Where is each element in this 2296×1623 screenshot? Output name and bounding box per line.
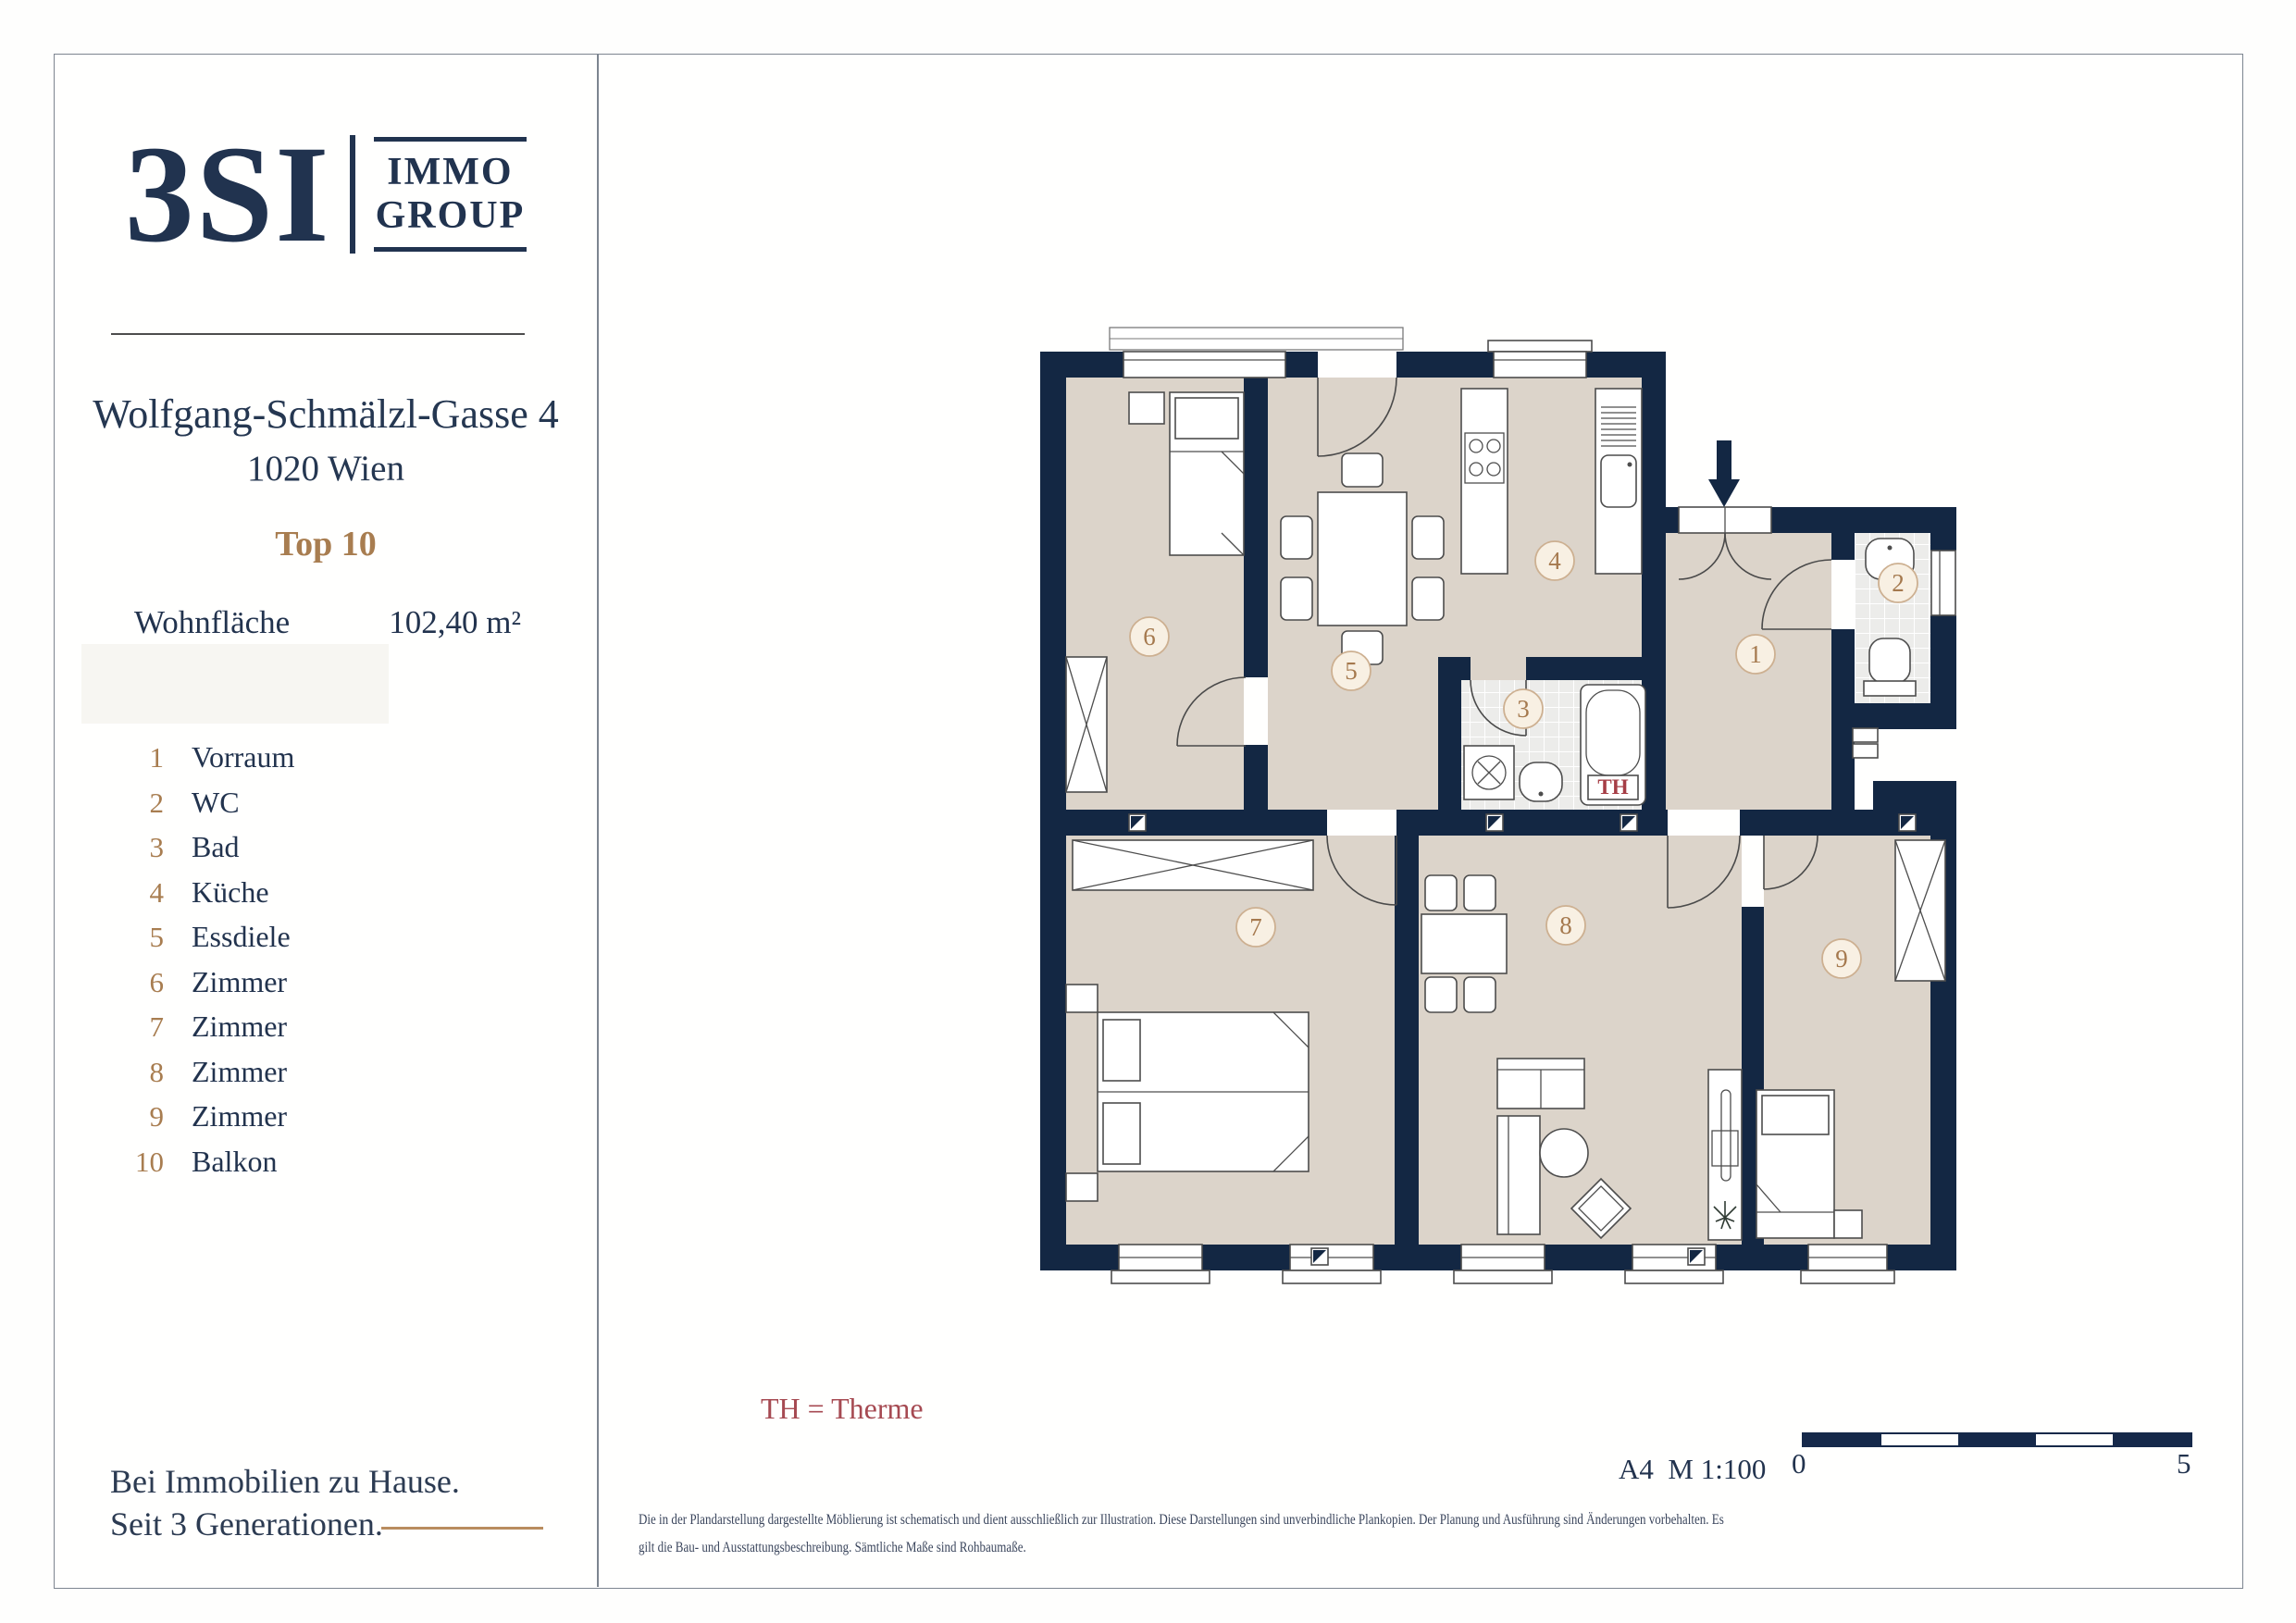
window-room8-left [1454, 1245, 1552, 1283]
legend-item: 7Zimmer [97, 1010, 294, 1055]
svg-text:6: 6 [1143, 623, 1156, 650]
svg-text:1: 1 [1749, 640, 1762, 668]
company-logo: 3SI IMMO GROUP [54, 125, 598, 264]
bath-sink [1520, 762, 1562, 801]
room-number-8: 8 [1546, 906, 1585, 945]
logo-group-text: GROUP [376, 194, 526, 238]
double-bed [1098, 1012, 1309, 1171]
room-number-2: 2 [1879, 564, 1917, 602]
legend-item: 6Zimmer [97, 965, 294, 1010]
room-number-5: 5 [1332, 651, 1371, 690]
washing-machine [1464, 746, 1514, 799]
wardrobe-room6 [1066, 657, 1107, 792]
faded-area-box [81, 644, 389, 724]
chaise [1497, 1116, 1540, 1234]
svg-text:2: 2 [1892, 569, 1905, 597]
balcony [1110, 328, 1403, 350]
tagline-line2: Seit 3 Generationen. [110, 1505, 383, 1543]
room-number-6: 6 [1130, 617, 1169, 656]
entry-arrow-icon [1708, 440, 1740, 507]
room-number-1: 1 [1736, 635, 1775, 674]
window-room8-right [1625, 1245, 1723, 1283]
logo-immo-text: IMMO [387, 151, 513, 194]
living-area-value: 102,40 m² [389, 604, 521, 641]
legend-item: 5Essdiele [97, 920, 294, 965]
logo-separator-line [111, 333, 525, 335]
window-room9 [1801, 1245, 1894, 1283]
unit-title: Top 10 [54, 524, 598, 564]
disclaimer-text: Die in der Plandarstellung dargestellte … [639, 1506, 1724, 1562]
room-number-4: 4 [1535, 541, 1574, 580]
window-room7-left [1111, 1245, 1210, 1283]
wardrobe-room7 [1073, 840, 1313, 890]
scale-start-label: 0 [1792, 1447, 1806, 1481]
round-table [1540, 1129, 1588, 1177]
window-kitchen [1488, 341, 1592, 378]
svg-text:5: 5 [1345, 657, 1358, 685]
living-area-label: Wohnfläche [134, 604, 290, 641]
room-number-7: 7 [1236, 908, 1275, 947]
th-label: TH [1597, 775, 1628, 799]
shelf-plant [1708, 1070, 1742, 1240]
svg-text:8: 8 [1559, 911, 1572, 939]
scale-end-label: 5 [2177, 1447, 2191, 1481]
window-room7-right [1283, 1245, 1381, 1283]
floor-plan: TH 1 2 3 4 5 6 7 8 9 [1040, 319, 1966, 1309]
address-city: 1020 Wien [54, 448, 598, 489]
tagline-accent-line [381, 1527, 543, 1530]
tagline-line1: Bei Immobilien zu Hause. [110, 1462, 460, 1501]
room-number-3: 3 [1504, 689, 1543, 728]
logo-vertical-rule [350, 135, 355, 254]
meter-boxes [1853, 728, 1878, 758]
logo-immo-group: IMMO GROUP [374, 137, 527, 252]
room-legend: 1Vorraum 2WC 3Bad 4Küche 5Essdiele 6Zimm… [97, 740, 294, 1189]
floorplan-page: 3SI IMMO GROUP Wolfgang-Schmälzl-Gasse 4… [0, 0, 2296, 1623]
room-number-9: 9 [1822, 939, 1861, 978]
logo-3si-text: 3SI [125, 125, 331, 264]
legend-item: 9Zimmer [97, 1099, 294, 1145]
th-legend-note: TH = Therme [761, 1392, 924, 1426]
legend-item: 10Balkon [97, 1145, 294, 1190]
window-room6 [1123, 352, 1285, 378]
svg-text:4: 4 [1548, 547, 1561, 575]
window-wc [1931, 551, 1955, 615]
legend-item: 8Zimmer [97, 1055, 294, 1100]
legend-item: 4Küche [97, 875, 294, 921]
scale-label: A4 M 1:100 [1619, 1453, 1766, 1486]
disclaimer-line2: gilt die Bau- und Ausstattungsbeschreibu… [639, 1534, 1724, 1562]
legend-item: 1Vorraum [97, 740, 294, 786]
address-street: Wolfgang-Schmälzl-Gasse 4 [54, 390, 598, 438]
scale-bar [1802, 1432, 2192, 1447]
svg-text:3: 3 [1517, 695, 1530, 723]
svg-text:9: 9 [1835, 945, 1848, 973]
sidebar-divider [597, 54, 599, 1587]
legend-item: 2WC [97, 786, 294, 831]
legend-item: 3Bad [97, 830, 294, 875]
sofa [1497, 1059, 1584, 1109]
svg-text:7: 7 [1249, 913, 1262, 941]
bed-room9 [1756, 1090, 1834, 1238]
wardrobe-room9 [1895, 840, 1945, 981]
disclaimer-line1: Die in der Plandarstellung dargestellte … [639, 1506, 1724, 1534]
living-area-row: Wohnfläche 102,40 m² [134, 604, 521, 641]
